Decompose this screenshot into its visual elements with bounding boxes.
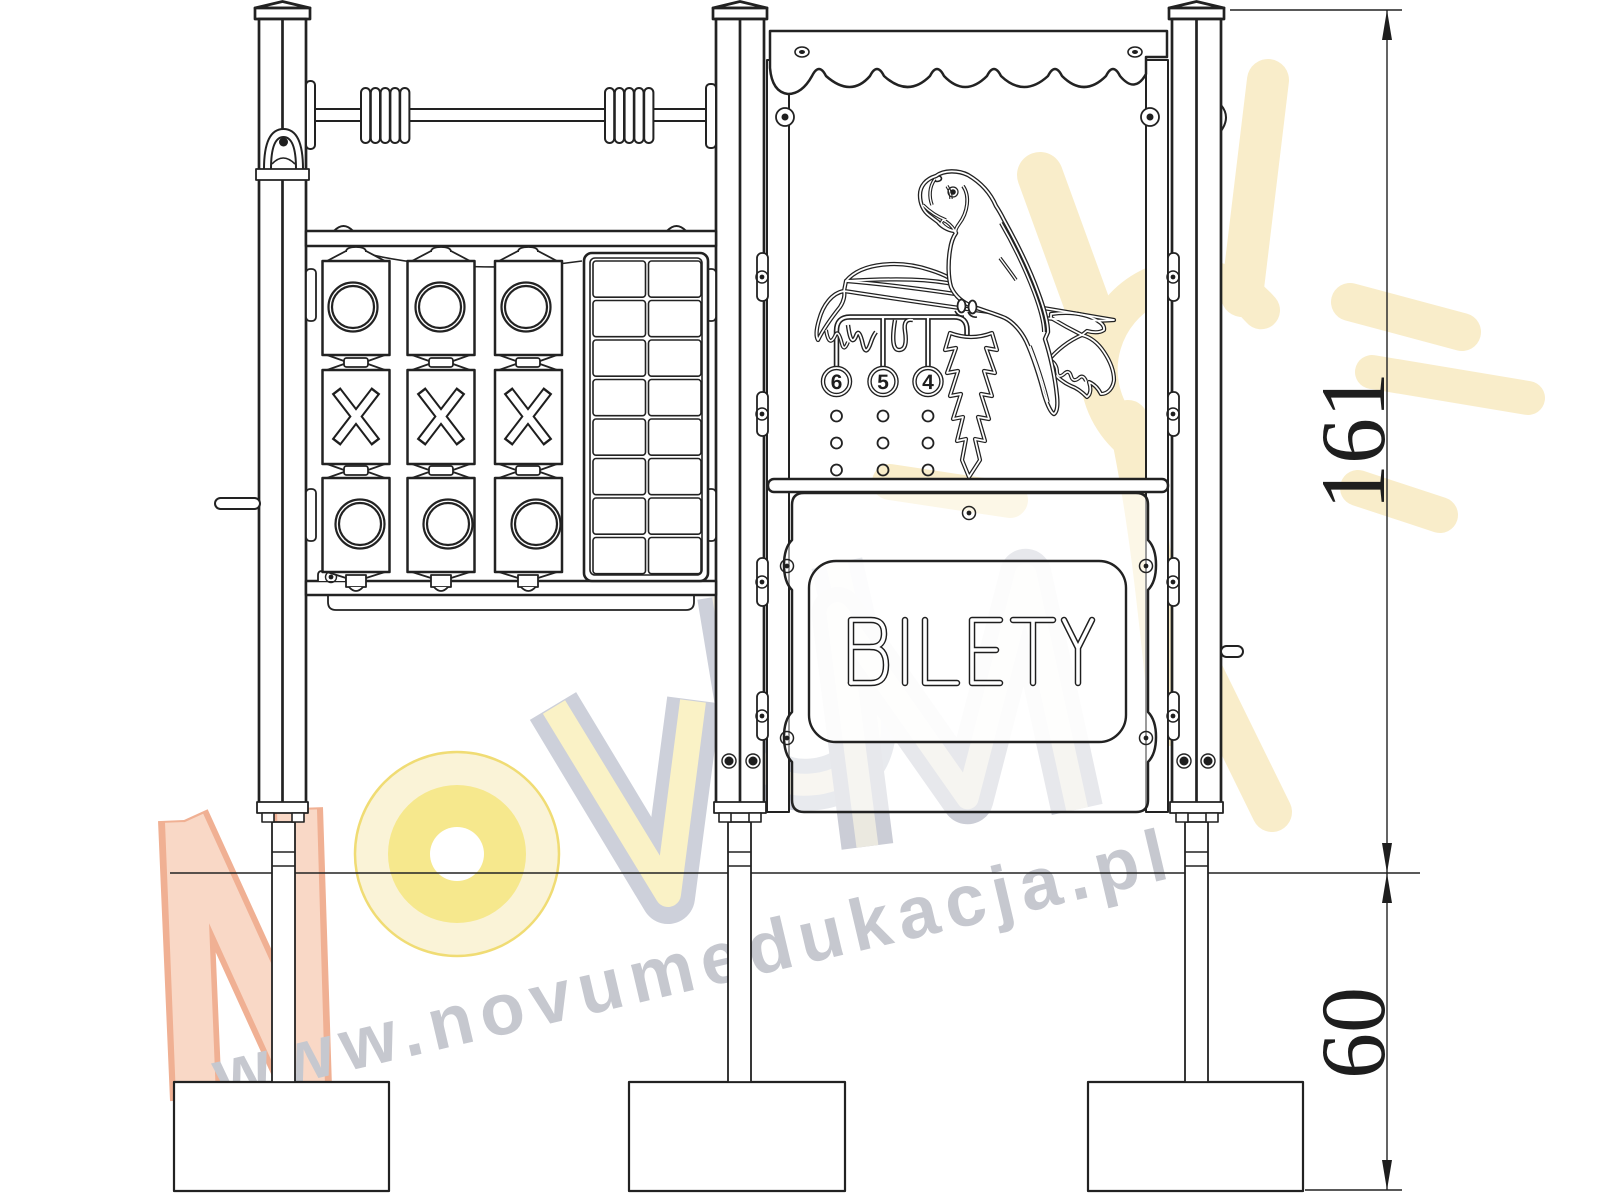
svg-text:60: 60 bbox=[1302, 987, 1404, 1079]
svg-text:4: 4 bbox=[922, 371, 934, 394]
svg-text:5: 5 bbox=[877, 371, 889, 394]
svg-text:161: 161 bbox=[1302, 372, 1404, 510]
svg-text:6: 6 bbox=[831, 371, 843, 394]
